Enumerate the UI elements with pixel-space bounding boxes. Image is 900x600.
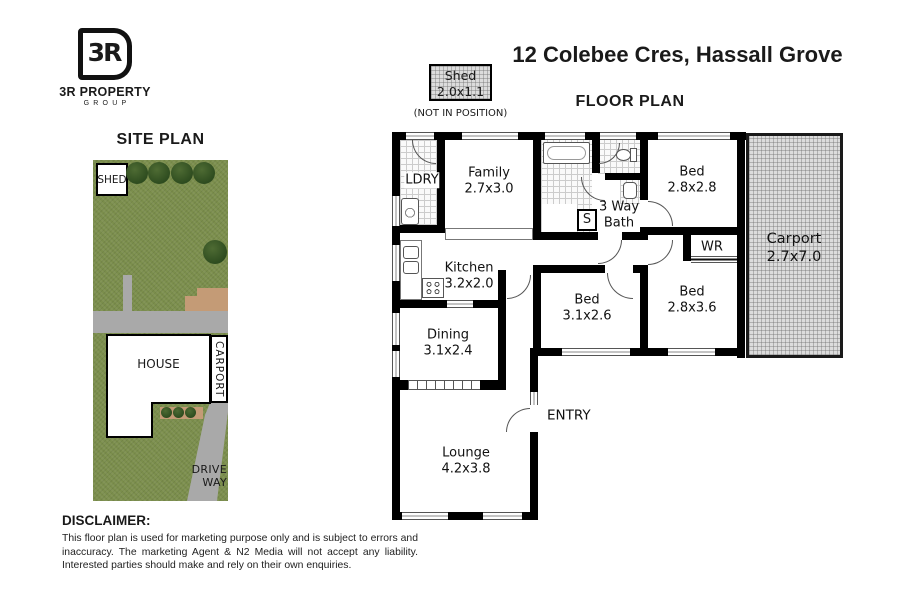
- room-name: Kitchen: [445, 261, 494, 276]
- wall-segment: [533, 348, 562, 356]
- site-carport: CARPORT: [210, 335, 228, 403]
- room-label-bed-top: Bed 2.8x2.8: [667, 165, 716, 196]
- door-arc: [598, 240, 622, 264]
- window: [392, 196, 400, 226]
- bush: [171, 162, 193, 184]
- site-carport-label: CARPORT: [213, 341, 225, 397]
- bathtub-inner: [547, 146, 586, 160]
- bush: [173, 407, 184, 418]
- servery-window: [447, 300, 473, 308]
- room-label-kitchen: Kitchen 3.2x2.0: [444, 261, 493, 292]
- wall-segment: [533, 265, 541, 348]
- room-name: Bed: [679, 165, 704, 180]
- wall-segment: [640, 265, 648, 356]
- window: [392, 351, 400, 377]
- room-label-dining: Dining 3.1x2.4: [423, 328, 472, 359]
- window: [600, 132, 636, 140]
- floor-plan-title: FLOOR PLAN: [520, 93, 740, 111]
- site-plan: CARPORT SHED HOUSE DRIVE WAY: [93, 160, 228, 501]
- bush: [193, 162, 215, 184]
- window: [392, 313, 400, 345]
- entry-door-arc: [506, 408, 530, 432]
- disclaimer-heading: DISCLAIMER:: [62, 513, 151, 528]
- room-name: Bed: [679, 285, 704, 300]
- room-dims: 3.2x2.0: [444, 276, 493, 291]
- brand-logo: 3R 3R PROPERTY GROUP: [55, 28, 155, 107]
- bush: [126, 162, 148, 184]
- shed-callout-note: (NOT IN POSITION): [413, 108, 508, 119]
- wall-segment: [683, 235, 691, 261]
- window: [545, 132, 585, 140]
- room-label-laundry: LDRY: [404, 172, 439, 188]
- linen-label: S: [583, 212, 591, 227]
- site-shed: SHED: [96, 163, 128, 196]
- folding-door: [408, 380, 480, 390]
- room-label-bed-right: Bed 2.8x3.6: [667, 285, 716, 316]
- room-name: Lounge: [442, 446, 490, 461]
- site-driveway-label: DRIVE WAY: [165, 463, 227, 489]
- bath-floor: [542, 204, 577, 232]
- entry-label: ENTRY: [547, 408, 591, 424]
- laundry-sink: [401, 198, 419, 225]
- bush: [148, 162, 170, 184]
- basin: [623, 182, 637, 199]
- window: [392, 245, 400, 281]
- brand-subname: GROUP: [55, 100, 155, 107]
- wall-segment: [498, 270, 506, 390]
- wall-segment: [530, 432, 538, 512]
- room-name: Bath: [604, 215, 634, 230]
- sliding-door: [691, 256, 737, 263]
- wall-segment: [533, 132, 541, 240]
- kitchen-sink: [403, 261, 419, 274]
- stove: [422, 278, 444, 298]
- room-label-bed-mid: Bed 3.1x2.6: [562, 293, 611, 324]
- room-name: Family: [468, 166, 510, 181]
- door-arc: [648, 201, 673, 226]
- window: [562, 348, 630, 356]
- toilet: [616, 149, 631, 161]
- room-dims: 4.2x3.8: [441, 461, 490, 476]
- door-arc: [648, 240, 673, 265]
- shed-callout-name: Shed: [445, 68, 476, 83]
- site-house-label: HOUSE: [107, 357, 210, 371]
- bush: [185, 407, 196, 418]
- kitchen-counter: [445, 228, 533, 240]
- wall-segment: [640, 227, 745, 235]
- window: [668, 348, 715, 356]
- window: [530, 392, 538, 405]
- wall-segment: [605, 173, 640, 180]
- room-dims: 2.8x3.6: [667, 300, 716, 315]
- window: [483, 512, 522, 520]
- door-arc: [507, 275, 531, 299]
- linen-cupboard: S: [577, 209, 597, 231]
- wall-segment: [392, 225, 445, 233]
- floor-plan: S LDRY Family 2.7x3.0 3 Way Bath Bed 2.8…: [390, 130, 845, 522]
- house-shape: [107, 335, 210, 437]
- shed-callout-dims: 2.0x1.1: [437, 84, 484, 99]
- window: [658, 132, 730, 140]
- site-shapes: [93, 160, 228, 501]
- bush: [161, 407, 172, 418]
- page: 3R 3R PROPERTY GROUP 12 Colebee Cres, Ha…: [0, 0, 900, 600]
- wall-segment: [392, 380, 408, 390]
- wall-segment: [737, 132, 745, 358]
- room-dims: 2.8x2.8: [667, 180, 716, 195]
- room-name: Bed: [574, 293, 599, 308]
- bathtub: [543, 142, 590, 164]
- shed-callout: Shed 2.0x1.1: [429, 64, 492, 101]
- property-address: 12 Colebee Cres, Hassall Grove: [450, 42, 900, 68]
- room-label-wardrobe: WR: [701, 239, 723, 255]
- kitchen-sink: [403, 246, 419, 259]
- wall-segment: [473, 300, 506, 308]
- wall-segment: [630, 348, 668, 356]
- site-shed-label: SHED: [97, 174, 126, 186]
- wall-segment: [392, 300, 447, 308]
- window: [406, 132, 434, 140]
- room-dims: 2.7x7.0: [767, 249, 822, 265]
- room-label-family: Family 2.7x3.0: [464, 166, 513, 197]
- brand-monogram-icon: 3R: [78, 28, 132, 80]
- toilet-cistern: [630, 148, 637, 162]
- window: [402, 512, 448, 520]
- wall-segment: [633, 265, 640, 273]
- room-label-carport: Carport 2.7x7.0: [767, 230, 822, 266]
- wall-segment: [480, 380, 498, 390]
- window: [462, 132, 518, 140]
- room-name: 3 Way: [599, 200, 639, 215]
- room-label-bath: 3 Way Bath: [599, 200, 639, 231]
- room-name: Dining: [427, 328, 469, 343]
- bush: [203, 240, 227, 264]
- wall-segment: [640, 132, 648, 200]
- brand-name: 3R PROPERTY: [55, 85, 155, 99]
- room-dims: 3.1x2.6: [562, 308, 611, 323]
- room-label-lounge: Lounge 4.2x3.8: [441, 446, 490, 477]
- room-dims: 3.1x2.4: [423, 343, 472, 358]
- site-plan-title: SITE PLAN: [93, 131, 228, 149]
- wall-segment: [533, 265, 605, 273]
- room-dims: 2.7x3.0: [464, 181, 513, 196]
- disclaimer-body: This floor plan is used for marketing pu…: [62, 532, 418, 573]
- room-name: Carport: [767, 231, 822, 247]
- wall-segment: [640, 235, 648, 240]
- wall-segment: [533, 232, 598, 240]
